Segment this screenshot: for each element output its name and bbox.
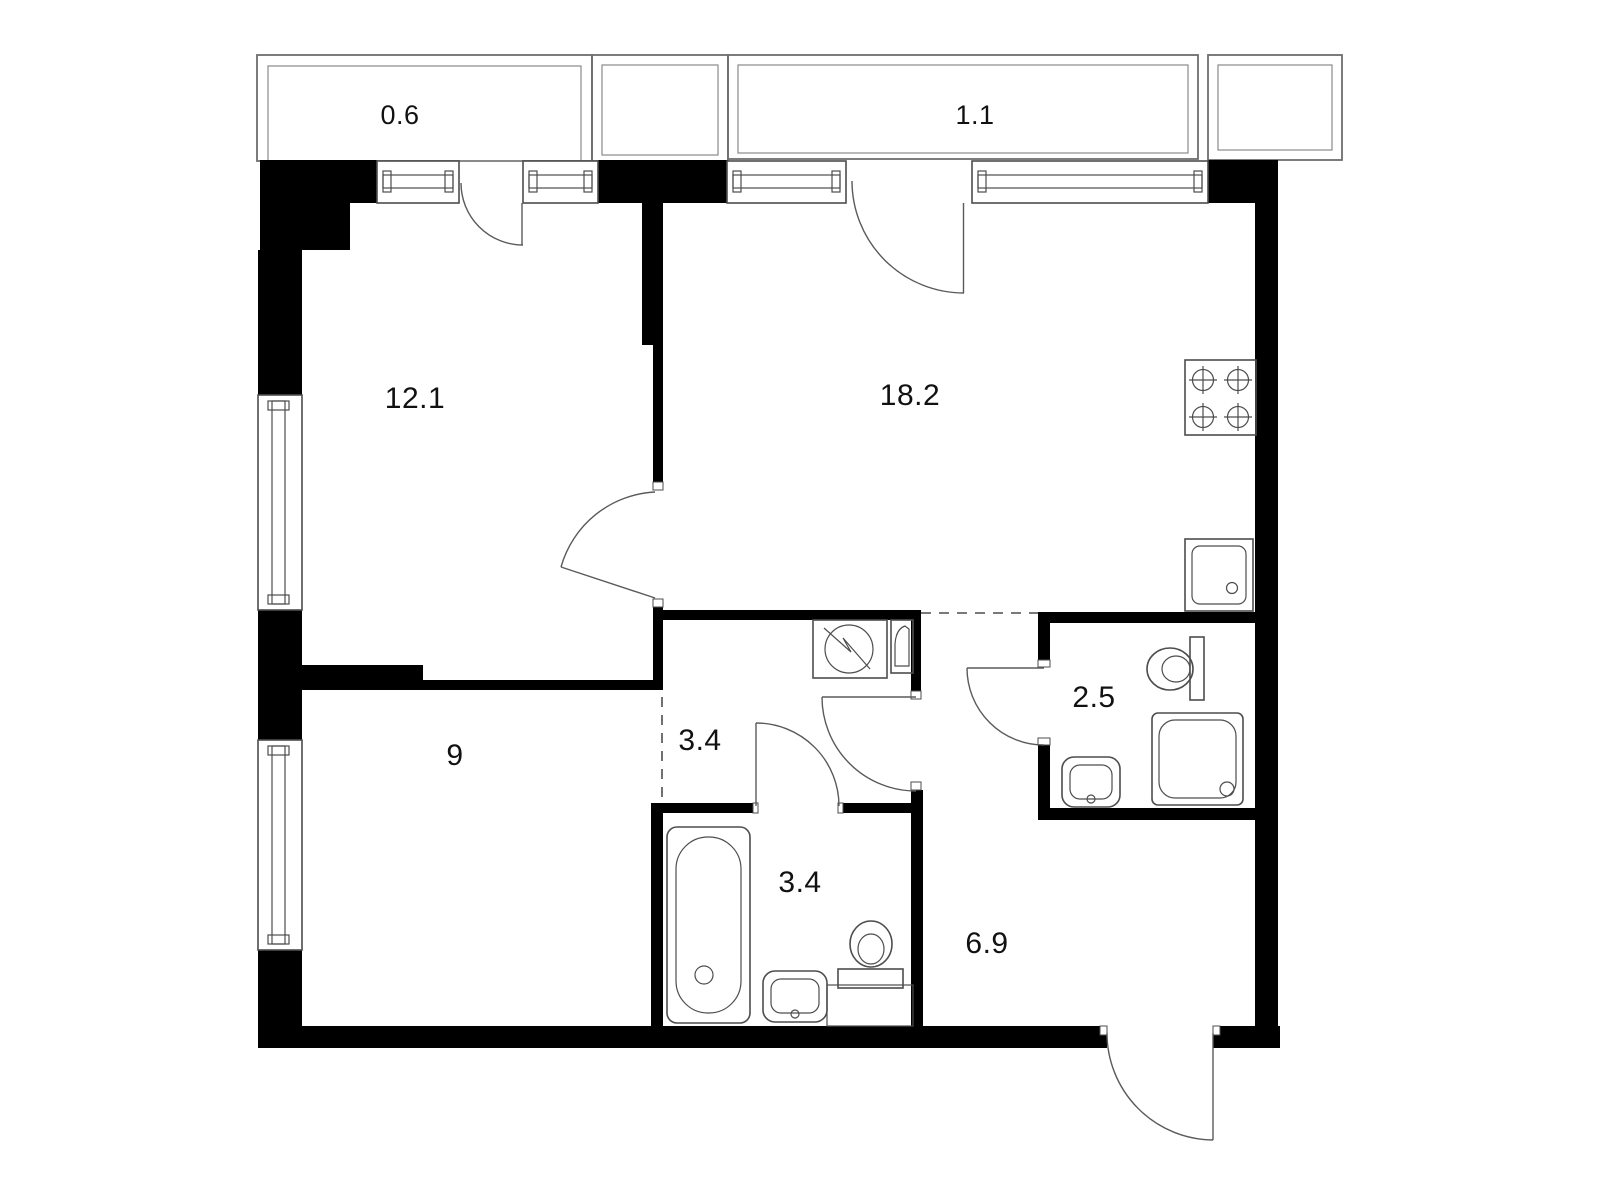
bedroom-label: 9 xyxy=(446,739,463,772)
floor-plan-drawing: 0.6 1.1 12.1 18.2 9 3.4 3.4 2.5 6.9 xyxy=(0,0,1600,1200)
door-jambs xyxy=(653,482,1220,1035)
balcony-divider-section xyxy=(592,55,728,161)
balcony-left xyxy=(257,55,592,161)
walls xyxy=(258,160,1280,1048)
balcony-left-door-icon xyxy=(461,183,523,245)
kitchen-sink-icon xyxy=(1185,539,1253,611)
entrance-door-icon xyxy=(1107,1033,1213,1140)
electrical-panel-icon xyxy=(891,620,913,673)
corridor-label: 6.9 xyxy=(965,927,1008,960)
hallway-label: 3.4 xyxy=(678,724,721,757)
toilet-icon xyxy=(827,921,913,1026)
balcony-corner-section xyxy=(1208,55,1342,160)
washing-machine-icon xyxy=(813,620,887,678)
balcony-left-label: 0.6 xyxy=(380,100,419,130)
living-room-label: 12.1 xyxy=(385,382,445,415)
shower-room-door-icon xyxy=(967,668,1044,745)
shower-tray-icon xyxy=(1152,713,1243,805)
shower-toilet-icon xyxy=(1147,637,1204,700)
window-icons-top xyxy=(377,161,1208,203)
bathroom-door-icon xyxy=(756,723,839,806)
bathroom-label: 3.4 xyxy=(778,866,821,899)
bathtub-icon xyxy=(667,827,750,1023)
balcony-right-door-icon xyxy=(852,181,964,293)
door-icons xyxy=(461,181,1213,1140)
kitchen-label: 18.2 xyxy=(880,379,940,412)
floor-plan-page: 0.6 1.1 12.1 18.2 9 3.4 3.4 2.5 6.9 xyxy=(0,0,1600,1200)
shower-room-label: 2.5 xyxy=(1072,681,1115,714)
stove-icon xyxy=(1185,360,1256,435)
hallway-door-icon xyxy=(822,697,916,791)
living-room-door-icon xyxy=(561,492,655,567)
zone-boundaries xyxy=(662,613,1038,800)
bathroom-sink-icon xyxy=(763,971,827,1022)
shower-sink-icon xyxy=(1062,757,1120,807)
balcony-right-label: 1.1 xyxy=(955,100,994,130)
